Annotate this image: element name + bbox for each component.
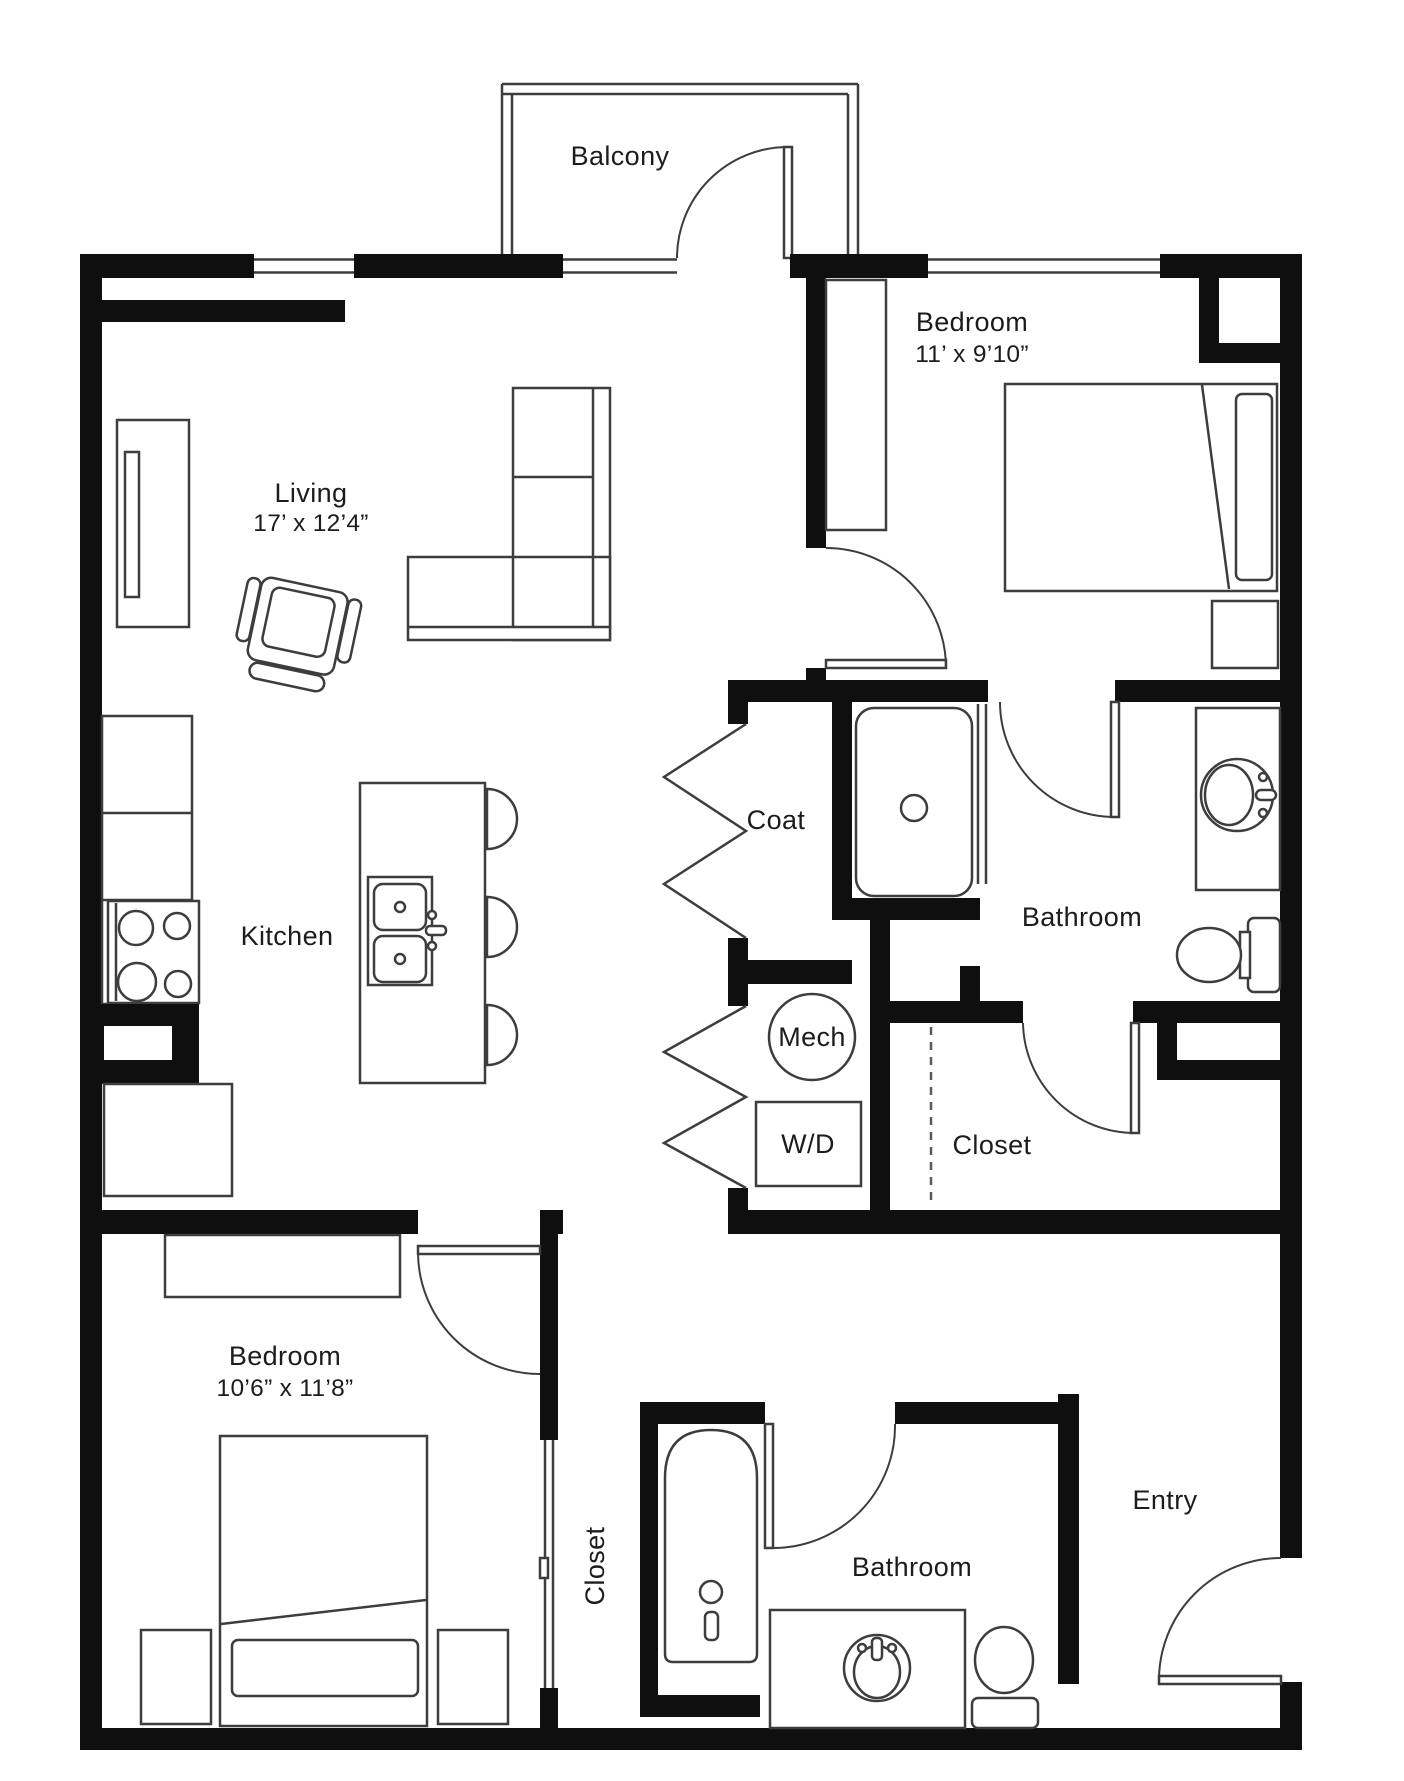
kitchen-wall-niche	[80, 1004, 199, 1084]
bedroom2-label: Bedroom	[229, 1341, 341, 1371]
kitchen-label: Kitchen	[241, 921, 334, 951]
bedroom2-nightstand-left	[141, 1630, 211, 1724]
living-dims: 17’ x 12’4”	[253, 510, 368, 537]
bedroom2-nightstand-right	[438, 1630, 508, 1724]
stove	[108, 901, 199, 1003]
bedroom1-dims: 11’ x 9’10”	[915, 341, 1029, 368]
entry-label: Entry	[1132, 1485, 1197, 1515]
balcony-door	[677, 147, 792, 258]
bedroom2-dresser	[165, 1235, 400, 1297]
bedroom1-bed	[1005, 384, 1277, 591]
entry-door	[1159, 1558, 1281, 1684]
balcony-label: Balcony	[571, 141, 670, 171]
shower	[856, 704, 986, 896]
sectional-sofa	[408, 388, 610, 640]
coat-label: Coat	[747, 805, 806, 835]
bedroom2-dims: 10’6” x 11’8”	[217, 1375, 354, 1402]
floorplan-page: Balcony Bedroom 11’ x 9’10” Living 17’ x…	[0, 0, 1404, 1781]
closet2-sliding-door	[540, 1440, 553, 1688]
bathroom1-label: Bathroom	[1022, 902, 1142, 932]
wd-label: W/D	[781, 1129, 835, 1159]
bedroom2-door	[418, 1246, 540, 1374]
bathroom2-toilet	[972, 1627, 1038, 1728]
bedroom1-nightstand	[1212, 601, 1278, 668]
bedroom1-wardrobe	[826, 280, 886, 530]
living-label: Living	[275, 478, 348, 508]
island-stools	[487, 789, 517, 1065]
closet2-label: Closet	[580, 1526, 610, 1605]
coat-bifold-door	[664, 724, 746, 938]
bathroom2-vanity	[770, 1610, 965, 1728]
floorplan-drawing: Balcony Bedroom 11’ x 9’10” Living 17’ x…	[0, 0, 1404, 1781]
bathroom1-toilet	[1177, 918, 1280, 992]
tv-console	[117, 420, 189, 627]
bathroom2-door	[765, 1424, 895, 1548]
mech-bifold-door	[664, 1006, 746, 1188]
fridge	[104, 1084, 232, 1196]
bedroom1-label: Bedroom	[916, 307, 1028, 337]
closet-door	[1023, 1023, 1139, 1133]
mech-label: Mech	[778, 1022, 846, 1052]
kitchen-island	[360, 783, 485, 1083]
armchair	[228, 573, 363, 697]
bedroom2-bed	[220, 1436, 427, 1726]
bathroom2-label: Bathroom	[852, 1552, 972, 1582]
closet1-label: Closet	[953, 1130, 1032, 1160]
bathroom1-door	[1000, 702, 1119, 817]
bedroom1-door	[826, 548, 946, 668]
bathtub	[665, 1430, 757, 1662]
bathroom1-vanity	[1196, 708, 1280, 890]
